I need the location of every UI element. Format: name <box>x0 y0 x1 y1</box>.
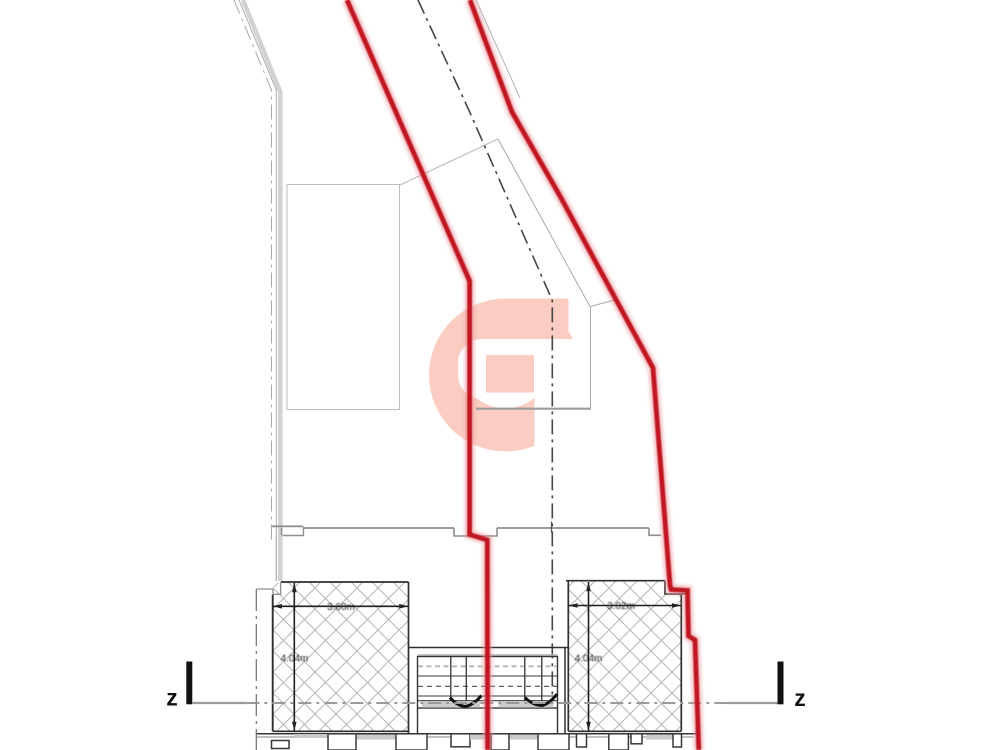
svg-text:z: z <box>794 685 806 711</box>
svg-text:3.02m: 3.02m <box>607 601 635 612</box>
svg-text:4.04m: 4.04m <box>281 654 309 665</box>
svg-text:z: z <box>166 685 178 711</box>
svg-text:4.04m: 4.04m <box>575 654 603 665</box>
svg-text:3.60m: 3.60m <box>327 602 355 613</box>
